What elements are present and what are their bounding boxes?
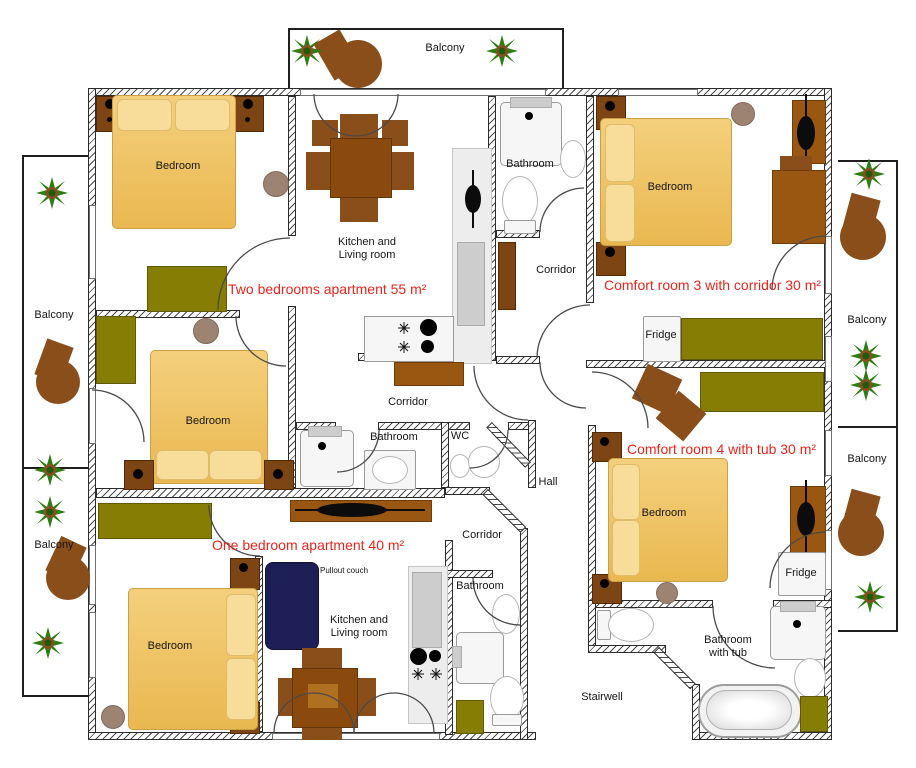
label-bedroom-4: Bedroom [624,507,704,520]
window [618,89,698,96]
pillow [612,520,640,576]
sink [372,456,408,484]
wall [288,96,296,236]
laundry-basket [800,696,828,732]
label-bedroom-5: Bedroom [130,640,210,653]
label-apartment-comfort-3: Comfort room 3 with corridor 30 m² [604,277,821,293]
burner-icon [420,319,437,336]
label-balcony-left-upper: Balcony [24,309,84,322]
laundry-basket [456,700,484,734]
wall [496,356,540,364]
label-fridge-c4: Fridge [780,567,822,580]
tv-icon [465,185,481,213]
window [825,336,832,382]
floor-plan: Balcony Balcony Balcony Balcony Balcony … [0,0,916,768]
lamp-icon [245,117,250,122]
burner-icon [421,340,434,353]
label-balcony-right-upper: Balcony [838,314,896,327]
label-balcony-top: Balcony [400,42,490,55]
lamp-icon [243,99,253,109]
burner-icon [429,650,441,662]
lamp-icon [605,101,615,111]
label-pullout-couch: Pullout couch [320,566,380,576]
fridge-unit [412,572,442,648]
plant-icon [35,176,69,210]
pillow [156,450,209,480]
shower [456,632,504,684]
stool [193,318,219,344]
dining-table [330,138,392,198]
plant-icon [485,34,519,68]
plant-icon [33,495,67,529]
toilet [502,176,538,226]
dresser [98,503,212,539]
toilet [468,446,500,478]
plant-icon [33,453,67,487]
stove [364,316,454,362]
desk [772,170,826,244]
plant-icon [853,580,887,614]
window [825,430,832,476]
window [300,89,546,96]
plant-icon [290,34,324,68]
window [825,236,832,294]
drain-icon [525,112,533,120]
label-bedroom-1: Bedroom [138,160,218,173]
wc-sink [450,454,470,478]
faucet-icon [452,646,462,668]
desk-long [681,318,823,360]
faucet-icon [780,601,816,612]
label-bathroom-mid: Bathroom [362,431,426,444]
window [272,733,440,740]
pullout-couch [265,562,319,650]
label-bathroom-top: Bathroom [498,158,562,171]
faucet-icon [510,97,552,108]
label-balcony-right-lower: Balcony [838,453,896,466]
lamp-icon [273,469,283,479]
corridor-wardrobe [498,242,516,310]
toilet [608,608,654,642]
drain-icon [793,620,801,628]
stool [731,102,755,126]
label-corridor-c3: Corridor [524,264,588,277]
label-corridor-twobed: Corridor [376,396,440,409]
pillow [226,658,256,720]
pillow [175,99,230,131]
bathtub-inner [706,690,792,730]
label-bathroom-onebed: Bathroom [448,580,512,593]
window [89,205,96,279]
pillow [226,594,256,656]
lamp-icon [605,247,615,257]
label-bedroom-3: Bedroom [630,181,710,194]
label-stairwell: Stairwell [570,691,634,704]
plant-icon [31,626,65,660]
lamp-icon [239,563,248,572]
dresser [147,266,227,312]
faucet-icon [308,426,342,437]
label-bedroom-2: Bedroom [168,415,248,428]
plant-icon [852,157,886,191]
label-apartment-two-bedroom: Two bedrooms apartment 55 m² [228,281,426,297]
desk-long [700,372,824,412]
label-wc: WC [445,430,475,443]
lamp-icon [600,437,609,446]
wall-diagonal [653,647,695,689]
window [89,388,96,444]
stool [101,705,125,729]
wardrobe [96,316,136,384]
label-kitchen-living-1: Kitchen and Living room [328,236,406,262]
sink [560,140,586,178]
label-balcony-left-lower: Balcony [24,539,84,552]
drain-icon [318,442,326,450]
wall [445,570,493,578]
shower [770,606,826,660]
pillow [117,99,172,131]
toilet-tank [492,714,522,726]
shower [300,430,354,487]
chair [340,194,378,222]
label-apartment-comfort-4: Comfort room 4 with tub 30 m² [627,441,816,457]
burner-icon [410,648,427,665]
tv-icon [797,116,815,150]
label-bathroom-with-tub: Bathroom with tub [696,634,760,660]
label-kitchen-living-2: Kitchen and Living room [320,614,398,640]
wall [586,360,832,368]
toilet-tank [504,220,536,234]
pillow [605,124,635,182]
label-hall: Hall [528,476,568,489]
plant-icon [849,368,883,402]
label-apartment-one-bedroom: One bedroom apartment 40 m² [212,537,404,553]
window [89,612,96,678]
stool [263,171,289,197]
sink [794,658,826,698]
label-fridge-c3: Fridge [640,329,682,342]
window [89,545,96,605]
tv-icon [797,502,815,536]
wall-diagonal [482,489,526,533]
lamp-icon [600,579,609,588]
pillow [209,450,262,480]
sink [492,594,520,634]
lamp-icon [133,469,143,479]
cutting-board [457,242,485,326]
tv-icon [317,503,387,517]
label-corridor-onebed: Corridor [450,529,514,542]
window [825,530,832,590]
stool [656,582,678,604]
shoe-shelf [394,362,464,386]
table-patch [308,684,338,708]
wall [378,422,470,430]
